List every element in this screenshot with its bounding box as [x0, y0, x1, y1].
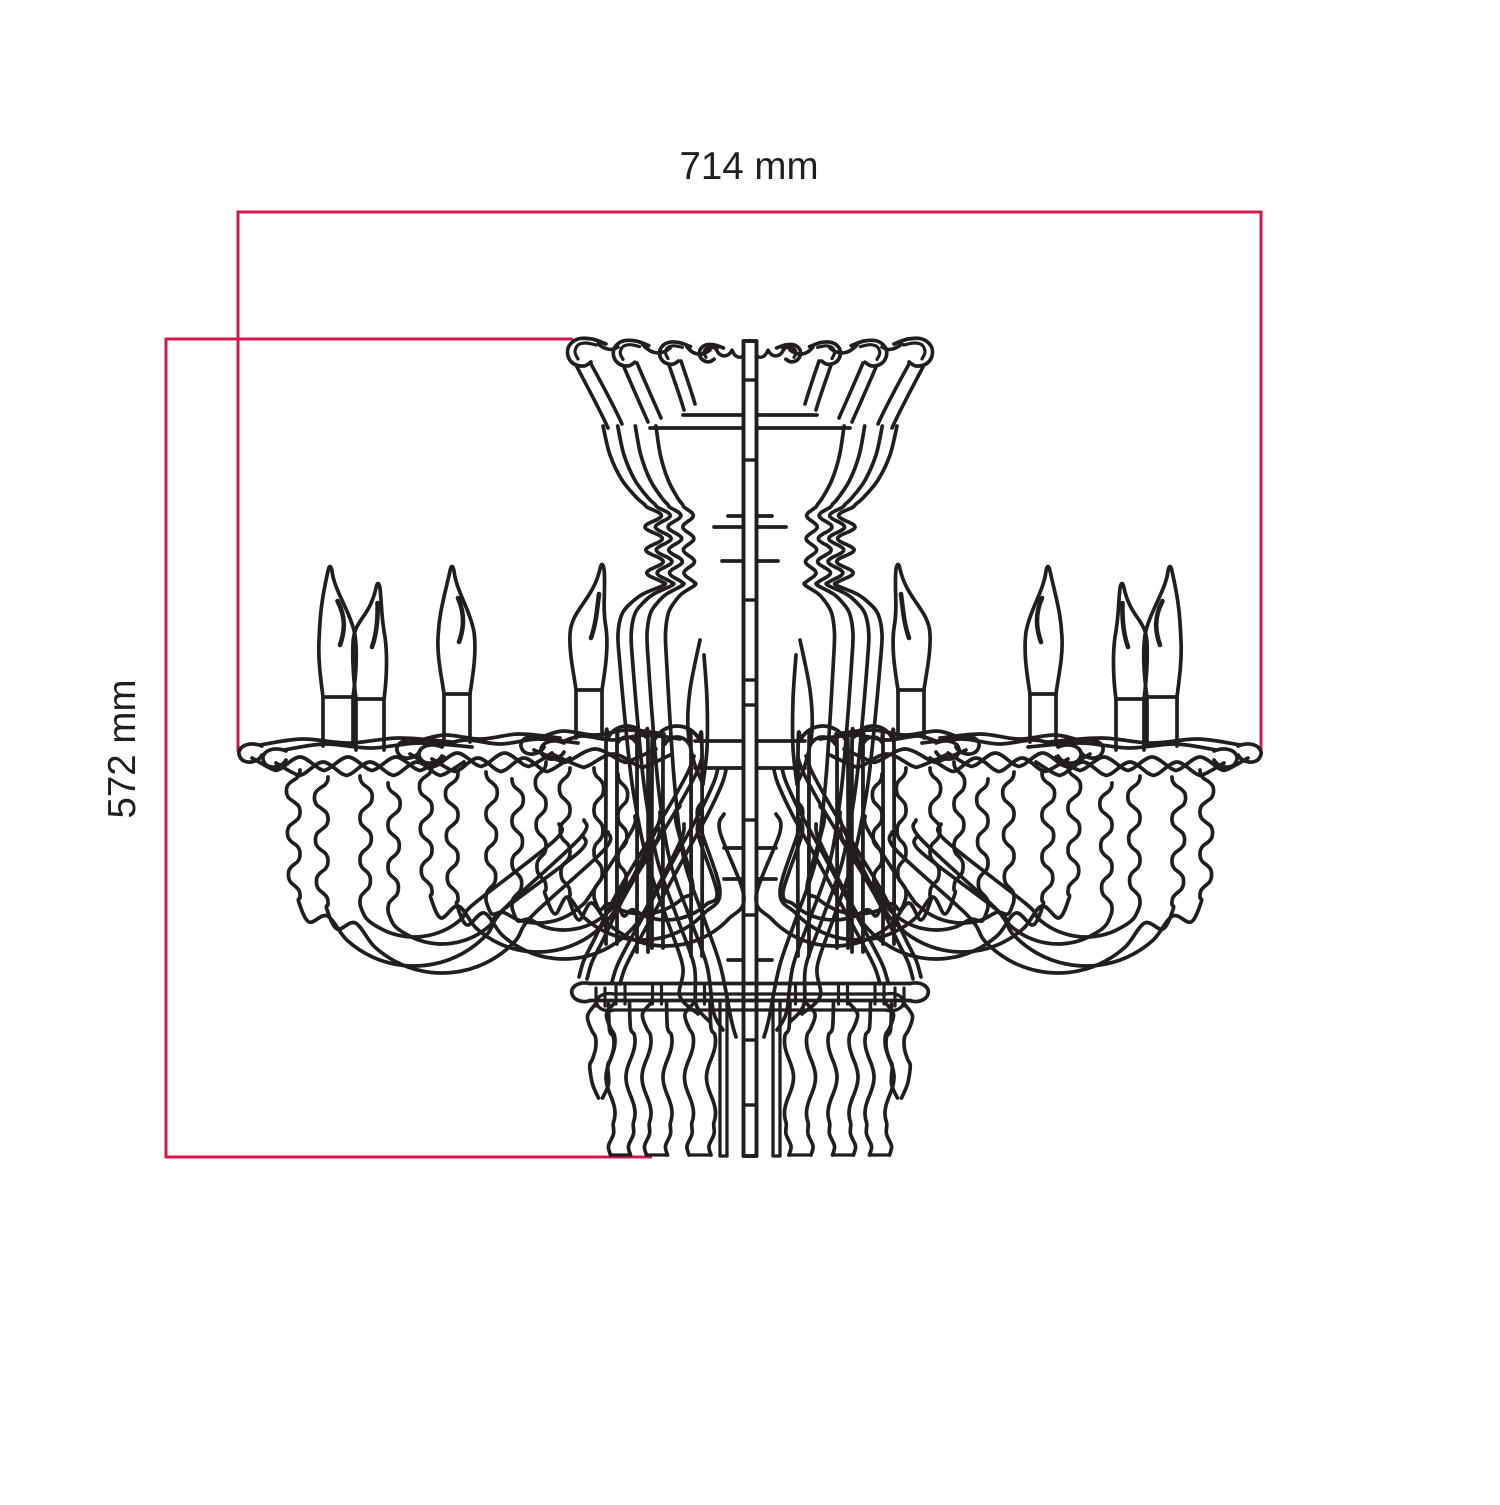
svg-text:714 mm: 714 mm	[679, 145, 818, 188]
svg-text:572 mm: 572 mm	[101, 679, 144, 818]
